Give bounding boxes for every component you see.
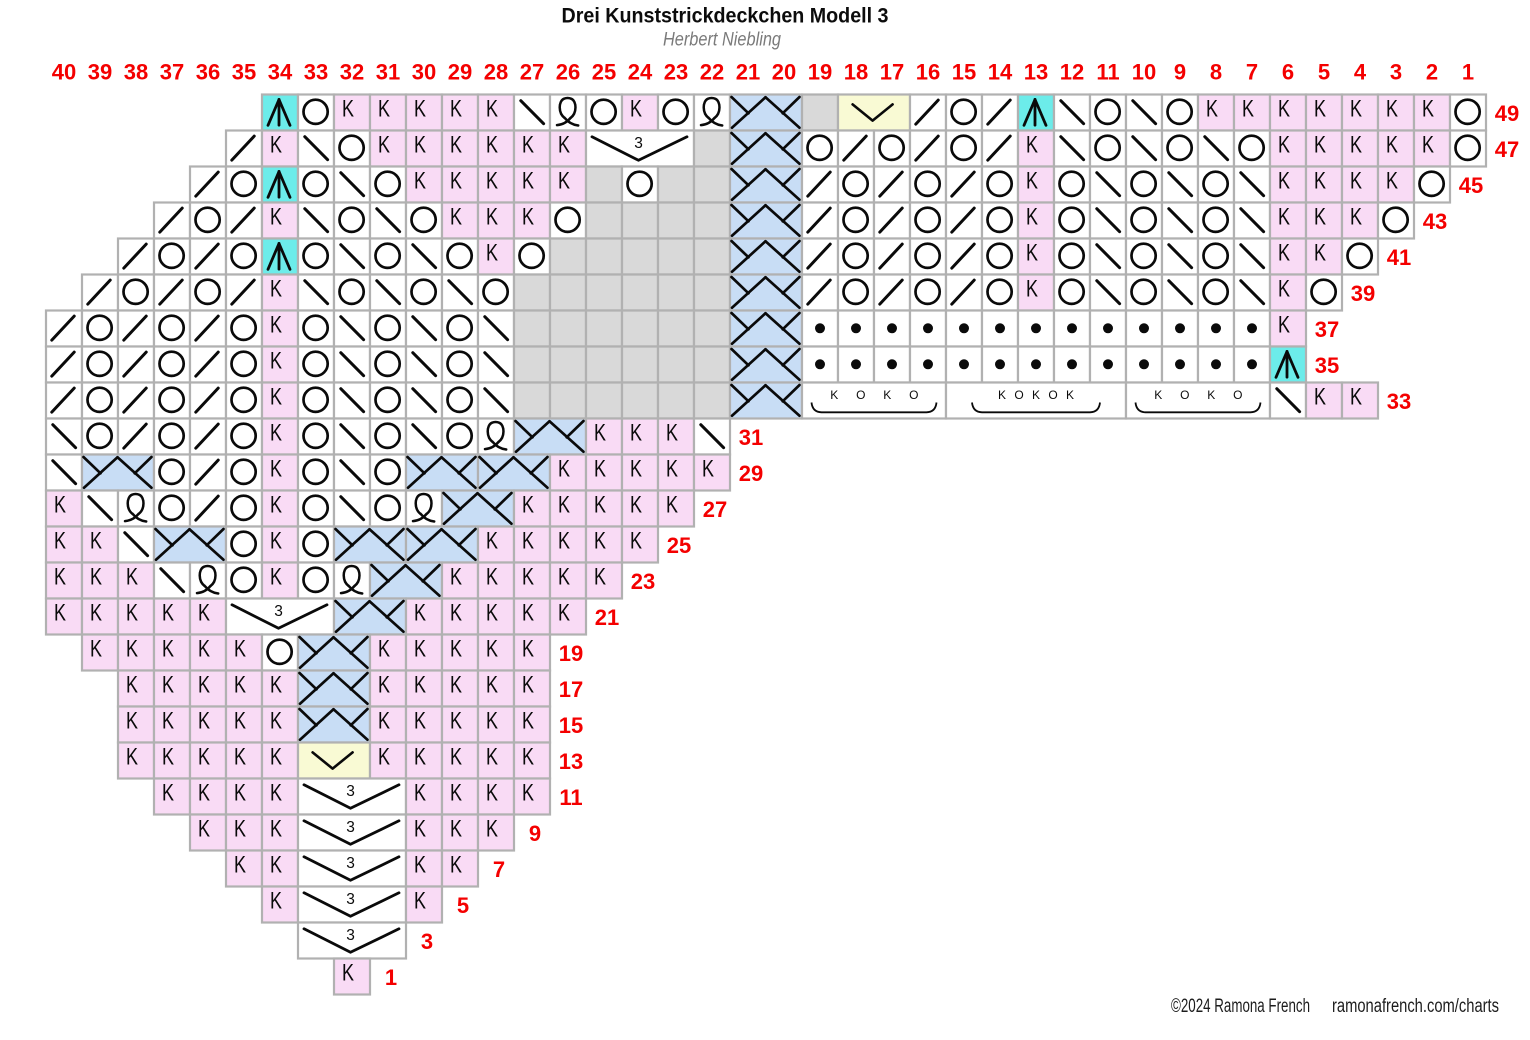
svg-text:K: K [594,419,606,446]
svg-text:3: 3 [346,927,355,944]
svg-text:K: K [486,203,498,230]
svg-text:K: K [234,707,246,734]
svg-text:K: K [450,671,462,698]
svg-text:K: K [883,388,891,402]
svg-text:11: 11 [1096,60,1119,85]
svg-text:K: K [378,95,390,122]
svg-text:7: 7 [1246,60,1258,85]
svg-text:K: K [594,563,606,590]
svg-text:O: O [909,388,918,402]
svg-text:K: K [630,527,642,554]
svg-text:K: K [414,671,426,698]
svg-text:K: K [90,599,102,626]
svg-text:1: 1 [1462,60,1474,85]
svg-text:23: 23 [664,60,688,85]
svg-text:K: K [450,95,462,122]
svg-text:41: 41 [1387,245,1411,270]
svg-text:17: 17 [559,677,583,702]
svg-text:K: K [162,635,174,662]
svg-text:K: K [666,455,678,482]
svg-text:6: 6 [1282,60,1294,85]
svg-text:O: O [1180,388,1189,402]
svg-text:10: 10 [1132,60,1156,85]
svg-text:33: 33 [304,60,328,85]
svg-text:27: 27 [520,60,544,85]
svg-text:K: K [270,743,282,770]
svg-text:K: K [90,635,102,662]
svg-text:29: 29 [448,60,472,85]
svg-text:K: K [450,707,462,734]
svg-text:K: K [486,671,498,698]
svg-text:K: K [414,887,426,914]
svg-text:25: 25 [667,533,691,558]
svg-text:K: K [414,131,426,158]
svg-text:K: K [198,779,210,806]
svg-text:K: K [270,707,282,734]
svg-text:K: K [486,599,498,626]
svg-text:49: 49 [1495,101,1519,126]
svg-text:K: K [450,815,462,842]
svg-text:K: K [486,707,498,734]
svg-text:14: 14 [988,60,1013,85]
svg-text:K: K [270,383,282,410]
svg-text:Herbert Niebling: Herbert Niebling [663,30,781,51]
svg-text:3: 3 [346,819,355,836]
svg-text:K: K [630,491,642,518]
svg-text:29: 29 [739,461,763,486]
svg-text:K: K [1026,275,1038,302]
svg-text:K: K [1314,95,1326,122]
svg-text:K: K [830,388,838,402]
svg-text:35: 35 [232,60,256,85]
svg-text:K: K [54,527,66,554]
svg-text:18: 18 [844,60,868,85]
svg-text:13: 13 [559,749,583,774]
svg-text:K: K [162,671,174,698]
svg-text:K: K [558,131,570,158]
svg-text:K: K [198,599,210,626]
svg-text:K: K [342,959,354,986]
svg-text:17: 17 [880,60,904,85]
svg-text:K: K [1066,388,1074,402]
svg-text:43: 43 [1423,209,1447,234]
svg-text:K: K [378,131,390,158]
svg-text:K: K [1278,239,1290,266]
svg-text:19: 19 [559,641,583,666]
svg-text:5: 5 [1318,60,1330,85]
svg-text:K: K [234,851,246,878]
svg-text:33: 33 [1387,389,1411,414]
svg-text:K: K [486,527,498,554]
svg-text:16: 16 [916,60,940,85]
svg-text:K: K [270,203,282,230]
svg-text:K: K [270,779,282,806]
svg-text:K: K [1026,131,1038,158]
svg-text:O: O [1014,388,1023,402]
svg-text:K: K [270,491,282,518]
svg-text:K: K [1032,388,1040,402]
svg-text:K: K [270,527,282,554]
svg-text:K: K [558,491,570,518]
svg-text:40: 40 [52,60,76,85]
svg-text:K: K [414,815,426,842]
svg-text:K: K [522,167,534,194]
svg-text:K: K [378,707,390,734]
svg-text:K: K [270,419,282,446]
svg-text:K: K [1154,388,1162,402]
svg-text:©2024 Ramona French: ©2024 Ramona French [1171,996,1310,1017]
svg-text:K: K [198,743,210,770]
svg-text:K: K [414,779,426,806]
svg-text:K: K [594,527,606,554]
svg-text:K: K [414,635,426,662]
svg-text:K: K [630,455,642,482]
svg-text:K: K [486,635,498,662]
svg-text:K: K [450,851,462,878]
svg-text:K: K [558,527,570,554]
svg-text:K: K [342,95,354,122]
svg-text:K: K [126,563,138,590]
svg-text:K: K [630,95,642,122]
svg-text:K: K [522,707,534,734]
svg-text:K: K [450,167,462,194]
svg-text:K: K [126,707,138,734]
svg-text:12: 12 [1060,60,1084,85]
svg-text:K: K [126,743,138,770]
svg-text:K: K [486,563,498,590]
svg-text:K: K [414,851,426,878]
svg-text:K: K [1386,167,1398,194]
svg-text:K: K [1278,311,1290,338]
svg-text:K: K [450,599,462,626]
svg-text:K: K [486,95,498,122]
svg-text:K: K [594,455,606,482]
svg-text:K: K [198,671,210,698]
svg-text:K: K [450,203,462,230]
svg-text:K: K [522,491,534,518]
svg-text:K: K [198,815,210,842]
svg-text:34: 34 [268,60,293,85]
svg-text:K: K [1206,95,1218,122]
svg-text:8: 8 [1210,60,1222,85]
svg-text:K: K [270,131,282,158]
svg-text:1: 1 [385,965,397,990]
svg-text:K: K [270,311,282,338]
svg-text:24: 24 [628,60,653,85]
svg-text:K: K [1350,383,1362,410]
svg-text:K: K [558,167,570,194]
svg-text:13: 13 [1024,60,1048,85]
svg-text:K: K [414,707,426,734]
svg-text:K: K [1026,167,1038,194]
svg-text:K: K [162,779,174,806]
svg-text:36: 36 [196,60,220,85]
svg-text:K: K [486,743,498,770]
svg-text:9: 9 [1174,60,1186,85]
svg-text:K: K [1278,131,1290,158]
svg-text:3: 3 [346,855,355,872]
svg-text:K: K [1278,167,1290,194]
svg-text:K: K [414,95,426,122]
svg-text:K: K [1350,167,1362,194]
svg-text:K: K [486,131,498,158]
svg-text:K: K [558,455,570,482]
svg-text:K: K [522,635,534,662]
svg-text:K: K [1242,95,1254,122]
svg-text:K: K [486,815,498,842]
svg-text:K: K [666,419,678,446]
svg-text:K: K [270,851,282,878]
svg-text:4: 4 [1354,60,1367,85]
svg-text:K: K [1350,203,1362,230]
svg-text:15: 15 [952,60,976,85]
svg-text:K: K [450,131,462,158]
svg-text:K: K [414,743,426,770]
svg-text:K: K [378,743,390,770]
svg-text:23: 23 [631,569,655,594]
svg-text:5: 5 [457,893,469,918]
svg-text:K: K [90,563,102,590]
svg-text:2: 2 [1426,60,1438,85]
svg-text:K: K [270,347,282,374]
svg-text:K: K [234,815,246,842]
svg-text:22: 22 [700,60,724,85]
svg-text:K: K [558,563,570,590]
svg-text:K: K [162,599,174,626]
svg-text:21: 21 [736,60,760,85]
svg-text:K: K [1278,275,1290,302]
svg-text:K: K [486,167,498,194]
svg-text:K: K [450,563,462,590]
svg-text:K: K [1386,95,1398,122]
svg-text:K: K [414,599,426,626]
svg-text:K: K [450,743,462,770]
svg-text:K: K [198,707,210,734]
svg-text:21: 21 [595,605,619,630]
svg-text:25: 25 [592,60,616,85]
svg-text:37: 37 [160,60,184,85]
svg-text:K: K [54,599,66,626]
svg-text:26: 26 [556,60,580,85]
svg-text:38: 38 [124,60,148,85]
svg-text:K: K [378,671,390,698]
svg-text:O: O [856,388,865,402]
svg-text:7: 7 [493,857,505,882]
svg-text:47: 47 [1495,137,1519,162]
svg-text:27: 27 [703,497,727,522]
svg-text:15: 15 [559,713,583,738]
svg-text:K: K [54,563,66,590]
svg-text:K: K [998,388,1006,402]
svg-text:K: K [1314,167,1326,194]
svg-text:K: K [1422,131,1434,158]
svg-text:O: O [1233,388,1242,402]
svg-text:31: 31 [376,60,400,85]
svg-text:39: 39 [1351,281,1375,306]
svg-text:K: K [1350,95,1362,122]
svg-text:K: K [1314,131,1326,158]
svg-text:3: 3 [346,783,355,800]
svg-text:30: 30 [412,60,436,85]
svg-text:K: K [234,671,246,698]
svg-text:K: K [594,491,606,518]
svg-text:K: K [522,743,534,770]
svg-text:K: K [1026,239,1038,266]
svg-text:K: K [522,671,534,698]
svg-text:3: 3 [1390,60,1402,85]
svg-text:K: K [1278,95,1290,122]
svg-text:45: 45 [1459,173,1483,198]
svg-text:K: K [234,743,246,770]
svg-text:3: 3 [634,135,643,152]
svg-text:31: 31 [739,425,763,450]
svg-text:K: K [630,419,642,446]
svg-text:Drei Kunststrickdeckchen Model: Drei Kunststrickdeckchen Modell 3 [562,4,889,28]
svg-text:K: K [54,491,66,518]
svg-text:K: K [522,563,534,590]
svg-text:K: K [126,635,138,662]
svg-text:K: K [270,275,282,302]
svg-text:K: K [1422,95,1434,122]
svg-text:K: K [522,779,534,806]
svg-text:K: K [450,635,462,662]
svg-text:K: K [486,239,498,266]
svg-text:K: K [486,779,498,806]
svg-text:ramonafrench.com/charts: ramonafrench.com/charts [1332,996,1499,1017]
svg-text:3: 3 [274,603,283,620]
svg-text:37: 37 [1315,317,1339,342]
svg-text:K: K [450,779,462,806]
svg-text:K: K [1026,203,1038,230]
svg-text:K: K [90,527,102,554]
svg-text:9: 9 [529,821,541,846]
svg-text:K: K [198,635,210,662]
svg-text:K: K [1278,203,1290,230]
svg-text:11: 11 [559,785,582,810]
svg-text:K: K [522,527,534,554]
svg-text:K: K [234,635,246,662]
svg-text:K: K [1207,388,1215,402]
svg-text:K: K [666,491,678,518]
svg-text:K: K [126,599,138,626]
svg-text:K: K [270,671,282,698]
svg-text:K: K [270,563,282,590]
svg-text:K: K [414,167,426,194]
svg-text:K: K [1386,131,1398,158]
svg-text:39: 39 [88,60,112,85]
svg-text:K: K [522,203,534,230]
svg-text:K: K [162,743,174,770]
svg-text:K: K [1350,131,1362,158]
svg-text:K: K [378,635,390,662]
svg-text:28: 28 [484,60,508,85]
svg-text:K: K [1314,203,1326,230]
svg-text:3: 3 [346,891,355,908]
svg-text:K: K [162,707,174,734]
svg-text:O: O [1048,388,1057,402]
svg-text:K: K [1314,239,1326,266]
svg-text:K: K [234,779,246,806]
svg-text:K: K [270,815,282,842]
svg-text:35: 35 [1315,353,1339,378]
svg-text:K: K [522,131,534,158]
svg-text:K: K [270,887,282,914]
svg-text:K: K [1314,383,1326,410]
svg-text:19: 19 [808,60,832,85]
svg-text:3: 3 [421,929,433,954]
svg-text:20: 20 [772,60,796,85]
svg-text:K: K [270,455,282,482]
svg-text:K: K [126,671,138,698]
svg-text:32: 32 [340,60,364,85]
svg-text:K: K [558,599,570,626]
svg-text:K: K [702,455,714,482]
svg-text:K: K [522,599,534,626]
